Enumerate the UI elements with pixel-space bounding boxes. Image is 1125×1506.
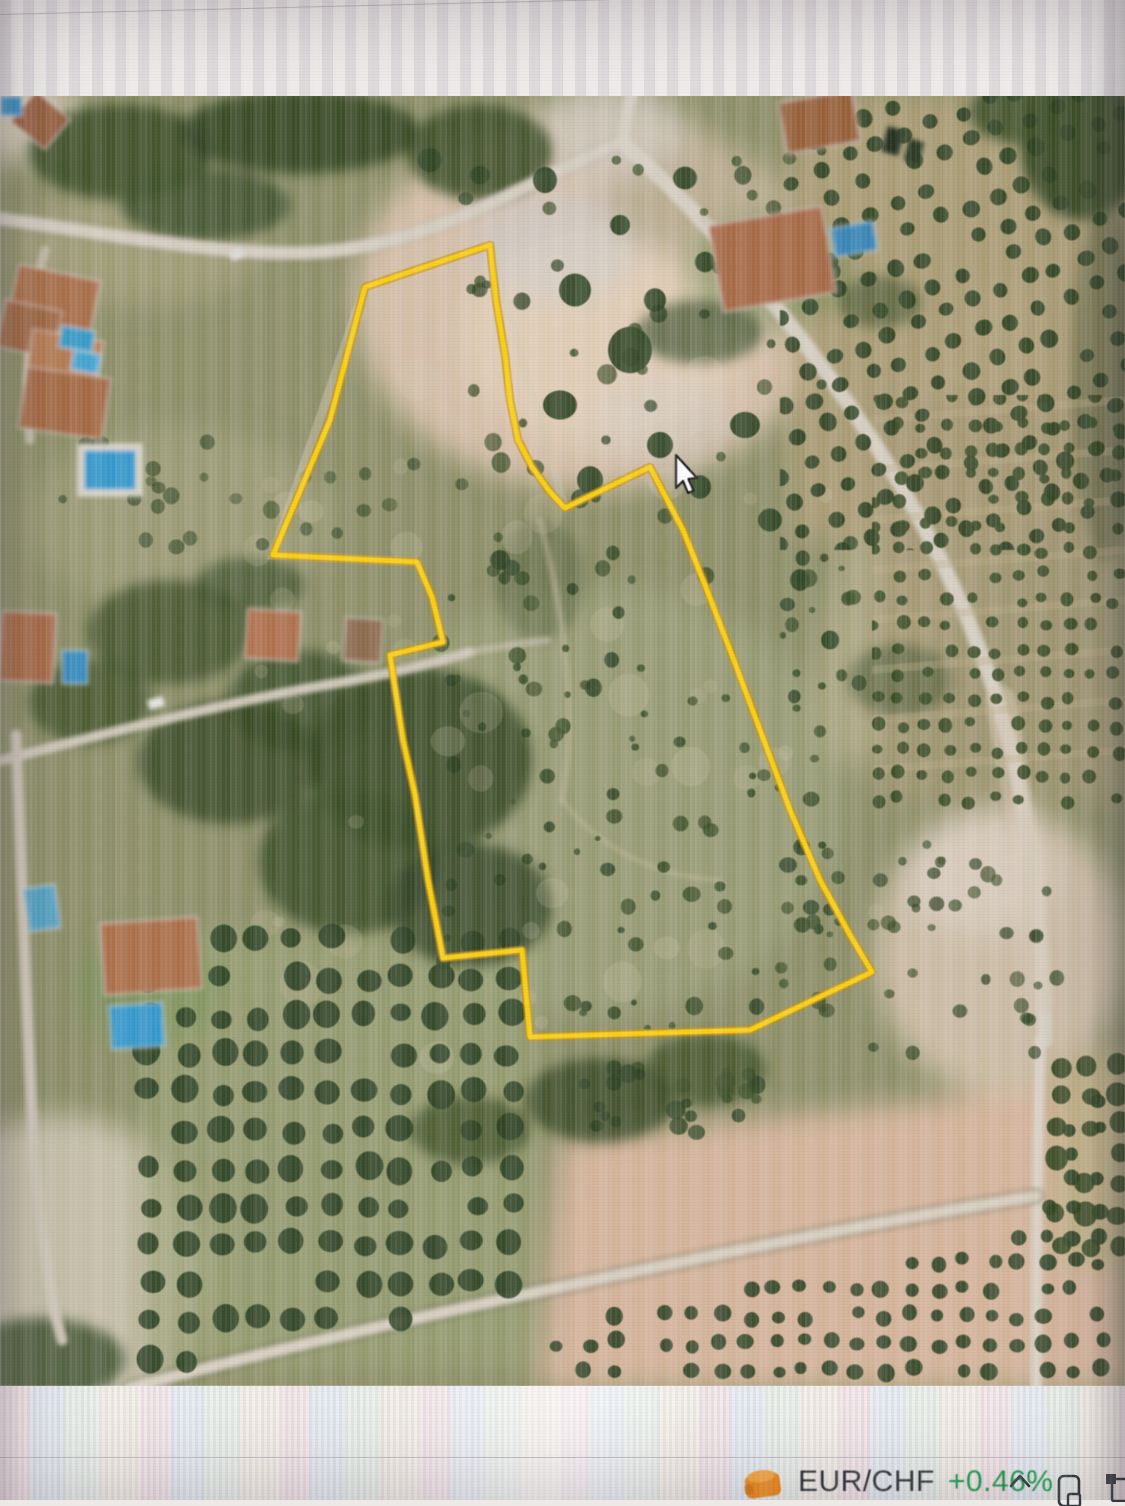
- chevron-up-icon[interactable]: [1008, 1472, 1032, 1490]
- ticker-symbol: EUR/CHF: [798, 1466, 935, 1498]
- system-tray: [1008, 1472, 1125, 1506]
- stocks-widget-icon: [742, 1466, 784, 1500]
- screen-photo: EUR/CHF +0.46%: [0, 0, 1125, 1500]
- widgets-ticker[interactable]: EUR/CHF +0.46%: [742, 1466, 1053, 1500]
- satellite-map[interactable]: [0, 0, 1125, 1500]
- monitor-icon[interactable]: [1104, 1472, 1125, 1502]
- phone-link-icon[interactable]: [1056, 1472, 1084, 1506]
- taskbar: EUR/CHF +0.46%: [0, 1462, 1125, 1500]
- screen-top-band: [0, 0, 1125, 96]
- photo-hairline: [0, 0, 660, 15]
